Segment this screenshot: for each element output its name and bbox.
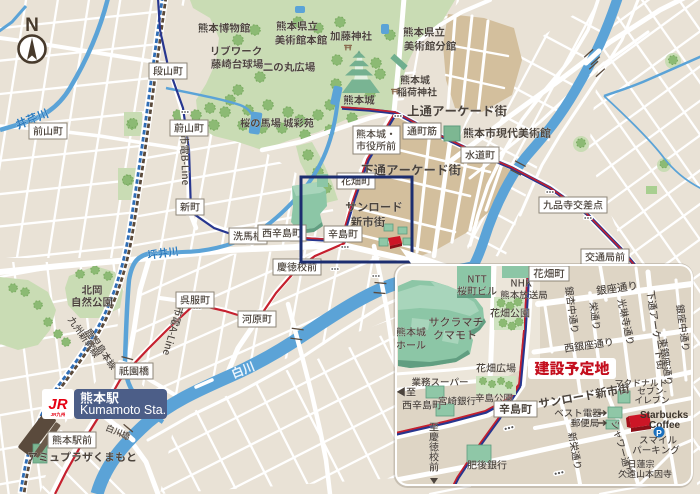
svg-text:JR: JR: [48, 396, 67, 413]
svg-text:Kumamoto Sta.: Kumamoto Sta.: [80, 403, 166, 417]
svg-text:N: N: [25, 15, 39, 36]
svg-text:Coffee: Coffee: [649, 420, 681, 431]
svg-text:P: P: [656, 428, 662, 438]
svg-text:JR九州: JR九州: [51, 411, 66, 418]
